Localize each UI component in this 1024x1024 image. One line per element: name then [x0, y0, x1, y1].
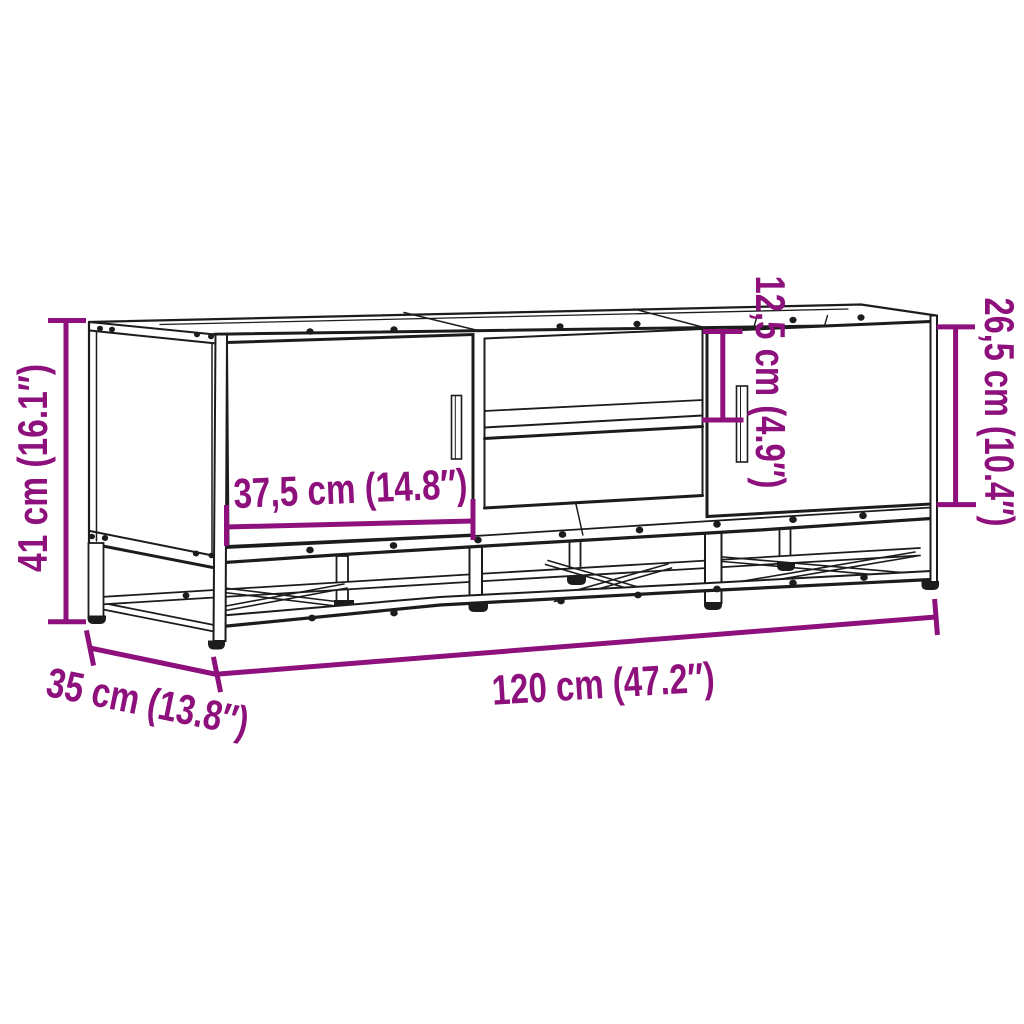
svg-text:41 cm (16.1″): 41 cm (16.1″): [9, 364, 56, 572]
svg-text:12,5 cm (4.9″): 12,5 cm (4.9″): [747, 276, 794, 489]
svg-text:26,5 cm (10.4″): 26,5 cm (10.4″): [976, 298, 1023, 527]
